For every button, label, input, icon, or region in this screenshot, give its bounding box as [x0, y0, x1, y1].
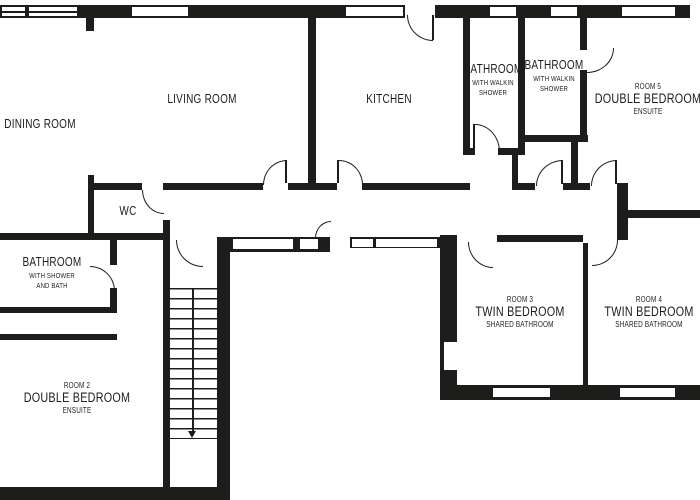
door-arc	[176, 240, 203, 267]
door-arc	[587, 48, 614, 73]
door-arc	[339, 160, 363, 185]
wall	[163, 220, 170, 487]
window	[551, 7, 577, 16]
room-detail: WITH WALKIN	[525, 75, 584, 83]
wall	[498, 148, 518, 155]
window	[493, 388, 550, 397]
room-label-kitchen: KITCHEN	[366, 93, 412, 107]
wall	[0, 233, 170, 240]
room-name: BATHROOM	[23, 256, 82, 270]
room-name: DOUBLE BEDROOM	[595, 92, 700, 107]
window	[233, 239, 293, 249]
room-detail: ENSUITE	[595, 107, 700, 116]
room-name: WC	[119, 205, 136, 219]
room-label-dining: DINING ROOM	[4, 118, 76, 132]
door-arc	[407, 15, 433, 41]
door-arc	[315, 221, 331, 238]
window-mullion	[2, 11, 25, 13]
room-label-room3: ROOM 3 TWIN BEDROOM SHARED BATHROOM	[475, 295, 564, 329]
door-arc	[475, 124, 500, 152]
wall	[583, 243, 588, 400]
wall	[94, 183, 142, 190]
wall	[617, 183, 628, 240]
wall	[0, 334, 117, 340]
room-detail: ENSUITE	[24, 406, 131, 415]
wall	[362, 183, 470, 190]
room-detail: SHARED BATHROOM	[604, 320, 693, 329]
wall	[580, 18, 587, 50]
room-label-room5: ROOM 5 DOUBLE BEDROOM ENSUITE	[595, 82, 700, 116]
room-label-bathroom-shower-bath: BATHROOM WITH SHOWER AND BATH	[23, 256, 82, 290]
window	[620, 388, 675, 397]
wall	[497, 235, 583, 242]
room-name: DINING ROOM	[4, 118, 76, 132]
door-arc	[536, 160, 563, 186]
wall	[288, 183, 337, 190]
room-detail: AND BATH	[23, 282, 82, 290]
room-name: KITCHEN	[366, 93, 412, 107]
door-arc	[142, 190, 164, 214]
room-detail: WITH SHOWER	[23, 272, 82, 280]
wall	[512, 183, 535, 190]
door-arc	[591, 160, 617, 186]
wall	[440, 235, 457, 400]
door-arc	[90, 266, 115, 291]
door-arc	[592, 240, 618, 266]
wall	[217, 237, 230, 500]
room-label-living: LIVING ROOM	[167, 93, 236, 107]
door-arc	[468, 242, 493, 268]
room-name: TWIN BEDROOM	[604, 305, 693, 320]
room-label-room2: ROOM 2 DOUBLE BEDROOM ENSUITE	[24, 381, 131, 415]
room-detail: WITH WALKIN	[464, 79, 523, 87]
room-name: BATHROOM	[464, 63, 523, 77]
floor-plan: DINING ROOM LIVING ROOM KITCHEN BATHROOM…	[0, 0, 700, 500]
window	[376, 239, 437, 247]
stair-direction-arrow	[188, 431, 196, 438]
room-detail: SHOWER	[525, 85, 584, 93]
window	[132, 7, 188, 16]
wall	[88, 175, 94, 233]
wall	[110, 240, 117, 265]
window	[444, 342, 457, 370]
wall	[308, 18, 316, 188]
room-name: BATHROOM	[525, 59, 584, 73]
wall	[0, 307, 113, 313]
room-label-room4: ROOM 4 TWIN BEDROOM SHARED BATHROOM	[604, 295, 693, 329]
wall	[563, 183, 590, 190]
room-label-wc: WC	[119, 205, 136, 219]
wall	[518, 135, 588, 142]
room-label-bathroom-walkin-right: BATHROOM WITH WALKIN SHOWER	[525, 59, 584, 93]
window	[490, 7, 516, 16]
wall	[0, 487, 230, 500]
room-detail: SHARED BATHROOM	[475, 320, 564, 329]
wall	[86, 18, 94, 31]
staircase	[170, 288, 217, 439]
room-detail: SHOWER	[464, 89, 523, 97]
wall	[163, 183, 263, 190]
room-label-bathroom-walkin-left: BATHROOM WITH WALKIN SHOWER	[464, 63, 523, 97]
window	[622, 7, 675, 16]
window	[346, 7, 403, 16]
door-opening	[142, 183, 163, 190]
room-name: TWIN BEDROOM	[475, 305, 564, 320]
stair-direction-line	[192, 288, 194, 432]
wall	[628, 210, 700, 218]
door-arc	[263, 160, 287, 185]
room-name: LIVING ROOM	[167, 93, 236, 107]
window-mullion	[29, 11, 77, 13]
window	[352, 239, 373, 247]
window	[300, 239, 318, 249]
wall	[0, 5, 690, 18]
room-name: DOUBLE BEDROOM	[24, 391, 131, 406]
